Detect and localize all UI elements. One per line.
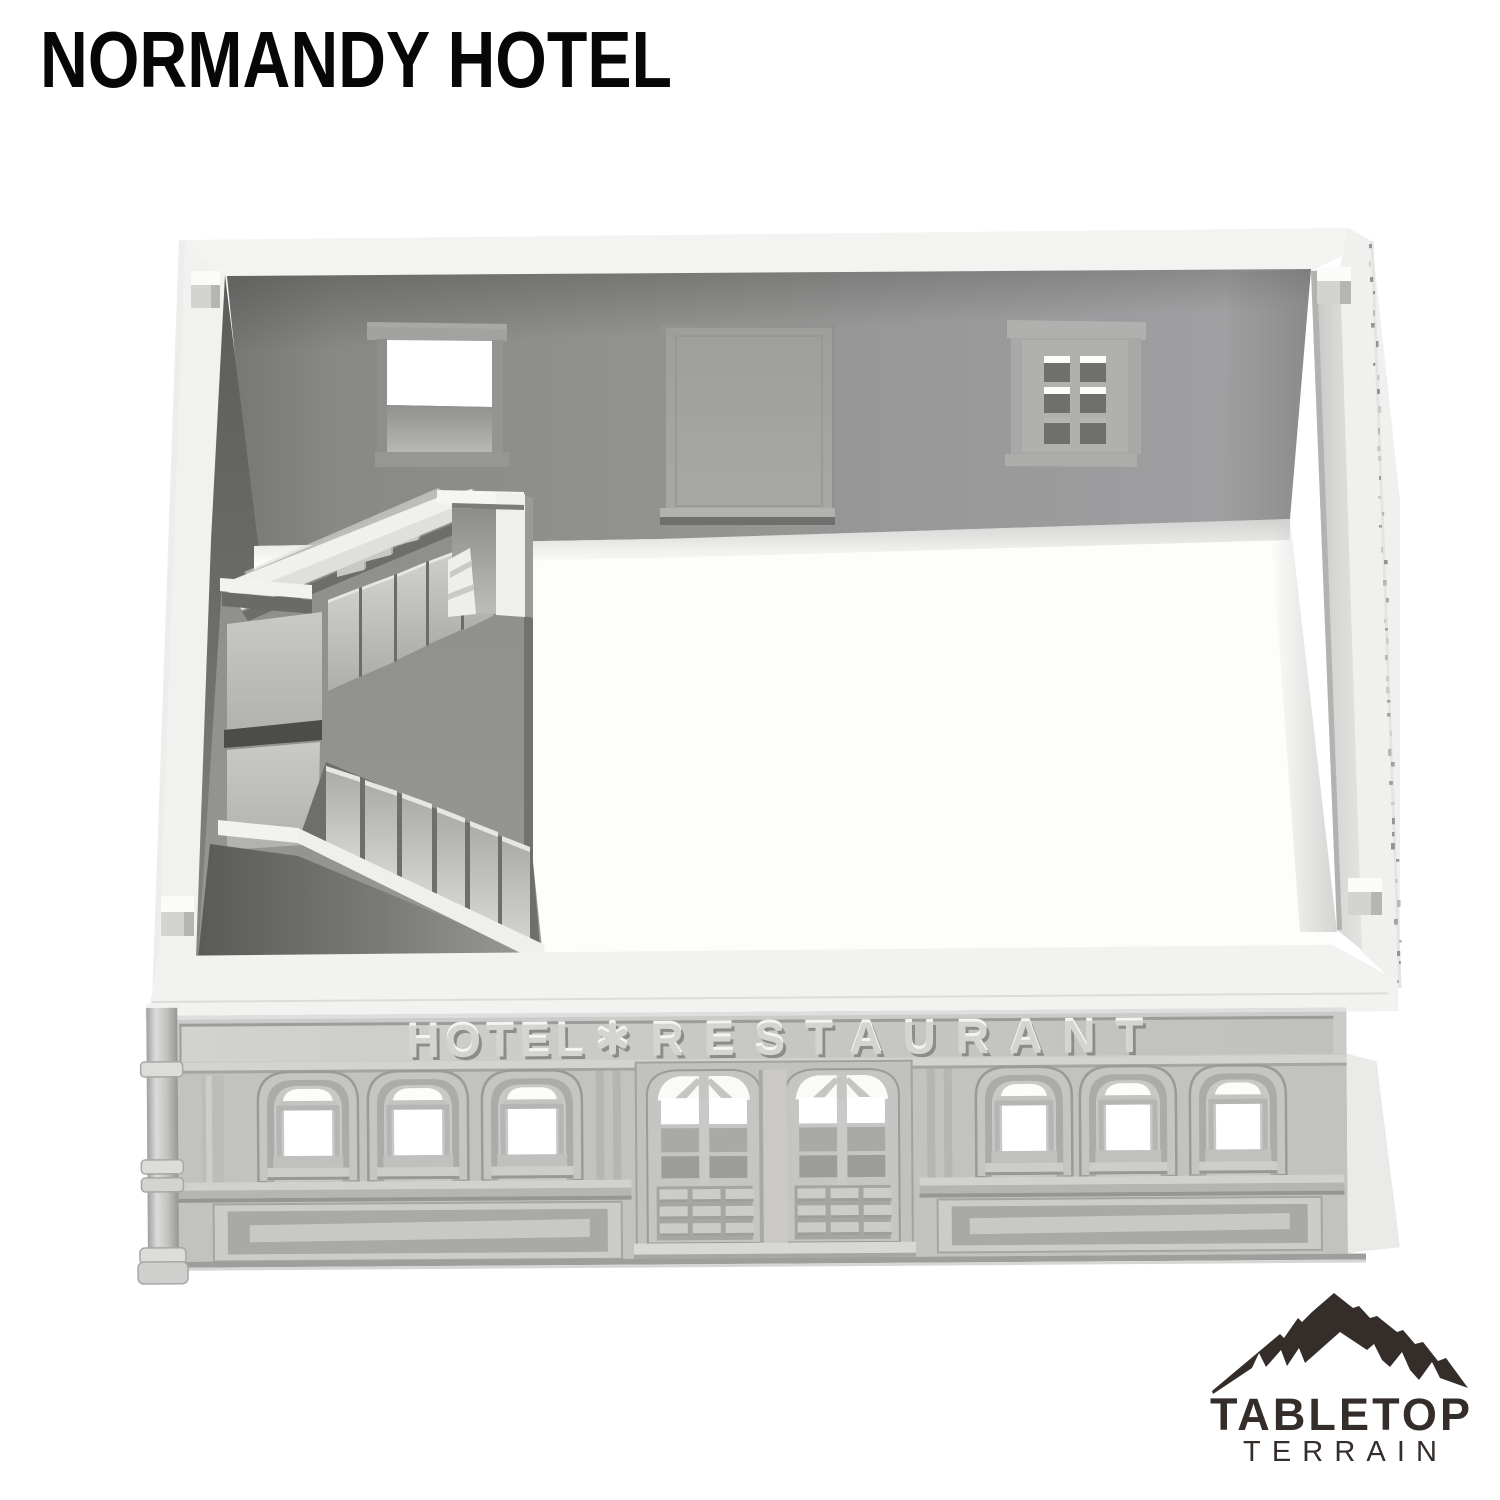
svg-text:TABLETOP: TABLETOP — [1210, 1389, 1470, 1440]
svg-text:HOTEL: HOTEL — [406, 1014, 583, 1067]
svg-text:NORMANDY HOTEL: NORMANDY HOTEL — [40, 15, 672, 104]
